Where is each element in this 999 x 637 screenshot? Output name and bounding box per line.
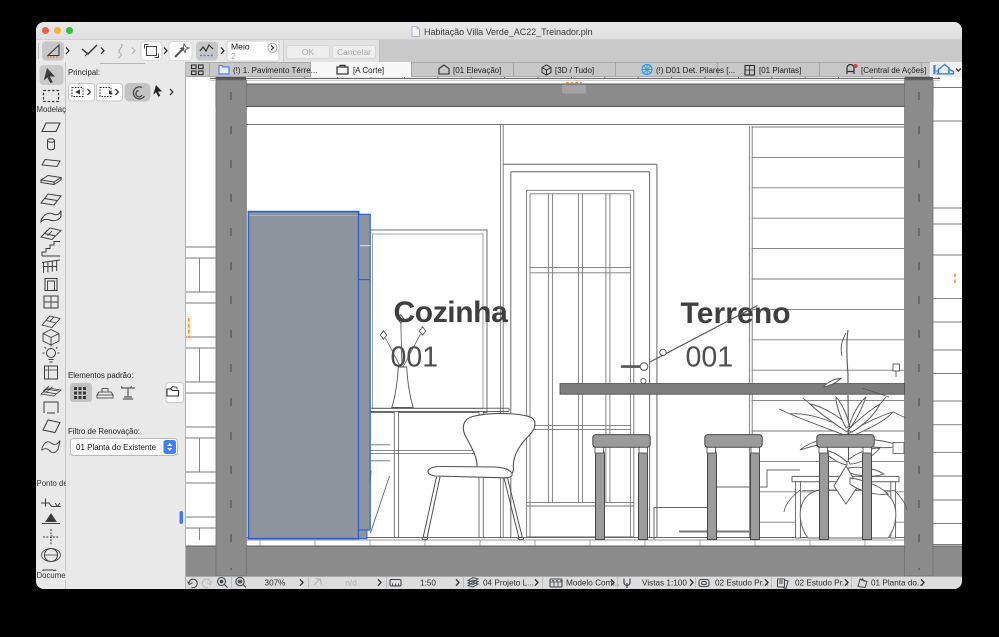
svg-text:1:50: 1:50 — [420, 579, 436, 588]
svg-text:001: 001 — [686, 342, 734, 374]
svg-text:02 Estudo Pr...: 02 Estudo Pr... — [795, 579, 849, 588]
svg-text:Terreno: Terreno — [681, 297, 791, 330]
svg-text:(!) D01 Det. Pilares [...: (!) D01 Det. Pilares [... — [656, 66, 735, 75]
svg-text:Filtro de Renovação:: Filtro de Renovação: — [68, 427, 140, 436]
svg-text:[Central de Ações]: [Central de Ações] — [861, 66, 926, 75]
svg-text:02 Estudo Pr...: 02 Estudo Pr... — [715, 579, 769, 588]
svg-text:04 Projeto L...: 04 Projeto L... — [483, 579, 534, 588]
svg-text:Principal:: Principal: — [68, 68, 100, 77]
svg-text:[A Corte]: [A Corte] — [353, 66, 384, 75]
svg-text:01 Planta do Existente: 01 Planta do Existente — [76, 443, 157, 452]
svg-text:[01 Plantas]: [01 Plantas] — [759, 66, 801, 75]
svg-text:01 Planta do...: 01 Planta do... — [871, 579, 924, 588]
svg-text:(!) 1. Pavimento Térre...: (!) 1. Pavimento Térre... — [233, 66, 317, 75]
svg-text:Vistas 1:100: Vistas 1:100 — [642, 579, 687, 588]
svg-text:001: 001 — [391, 342, 439, 374]
svg-text:n/d: n/d — [345, 578, 357, 588]
svg-text:Modelaç: Modelaç — [37, 105, 67, 114]
svg-text:Cozinha: Cozinha — [394, 296, 509, 329]
svg-text:[3D / Tudo]: [3D / Tudo] — [555, 66, 594, 75]
svg-text:Elementos padrão:: Elementos padrão: — [68, 371, 133, 380]
svg-text:Meio: Meio — [231, 42, 250, 52]
svg-text:307%: 307% — [265, 579, 286, 588]
svg-text:2: 2 — [231, 51, 236, 61]
svg-text:[01 Elevação]: [01 Elevação] — [453, 66, 501, 75]
